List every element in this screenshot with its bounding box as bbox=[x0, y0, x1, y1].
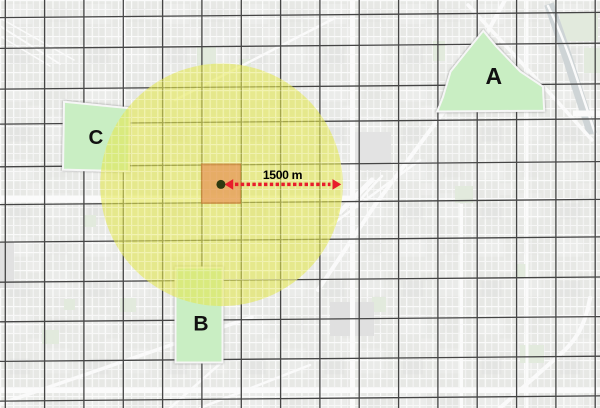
svg-text:A: A bbox=[485, 63, 502, 89]
svg-text:C: C bbox=[88, 126, 103, 149]
svg-text:1500 m: 1500 m bbox=[263, 168, 303, 182]
svg-text:B: B bbox=[193, 312, 208, 335]
